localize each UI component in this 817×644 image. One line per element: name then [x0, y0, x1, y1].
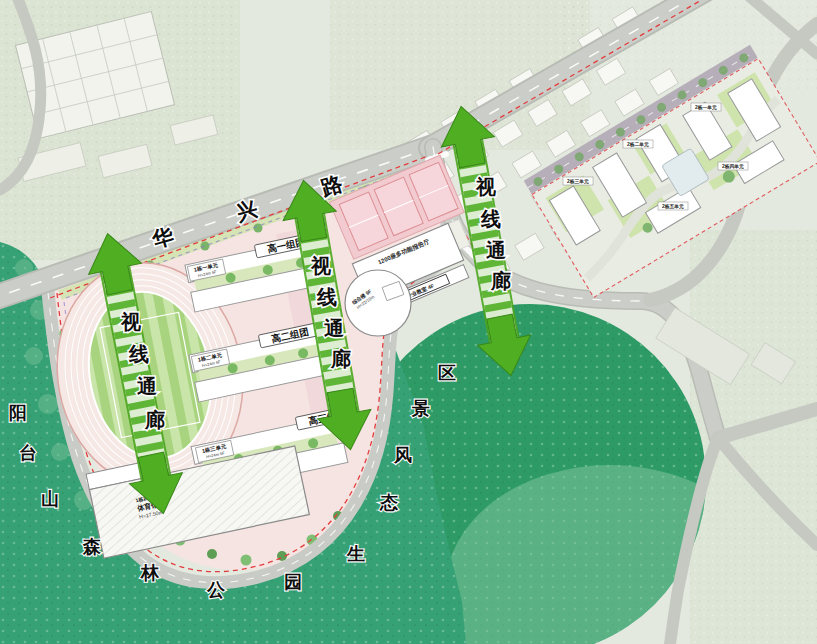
corridor1-char-2: 线	[128, 343, 149, 365]
round-building: 综合楼 9F H=22/10m	[345, 270, 411, 336]
scenic-char-4: 景	[411, 399, 430, 419]
complex-b5-label: 2栋五单元	[662, 203, 684, 210]
corridor3-char-3: 通	[485, 239, 506, 261]
corridor2-char-4: 廊	[330, 348, 351, 370]
corridor1-char-4: 廊	[144, 409, 165, 431]
corridor1-char-1: 视	[120, 311, 141, 333]
scenic-char-5: 区	[438, 363, 456, 383]
complex-b1-label: 2栋一单元	[695, 104, 717, 111]
park-char-5: 林	[140, 563, 160, 583]
site-plan-map: 1栋一单元 H=24m 6F 高一组团 1栋二单元 H=24m 6F 高二组团 …	[0, 0, 817, 644]
park-char-4: 森	[82, 537, 101, 557]
scenic-char-3: 风	[393, 445, 412, 465]
corridor3-char-1: 视	[475, 176, 496, 198]
park-char-2: 台	[19, 443, 37, 463]
corridor1-char-3: 通	[136, 375, 157, 397]
complex-b2-label: 2栋二单元	[627, 141, 649, 148]
park-char-6: 公	[206, 580, 226, 600]
park-char-7: 园	[284, 572, 302, 592]
park-char-1: 阳	[9, 403, 27, 423]
complex-b3-label: 2栋三单元	[567, 178, 589, 185]
corridor2-char-2: 线	[316, 286, 337, 308]
scenic-char-2: 态	[379, 493, 398, 513]
corridor2-char-1: 视	[310, 255, 331, 277]
complex-b4-label: 2栋四单元	[722, 163, 744, 170]
corridor3-char-2: 线	[480, 208, 501, 230]
corridor3-char-4: 廊	[490, 270, 511, 292]
park-char-3: 山	[41, 489, 59, 509]
corridor2-char-3: 通	[323, 317, 344, 339]
scenic-char-1: 生	[346, 544, 365, 564]
